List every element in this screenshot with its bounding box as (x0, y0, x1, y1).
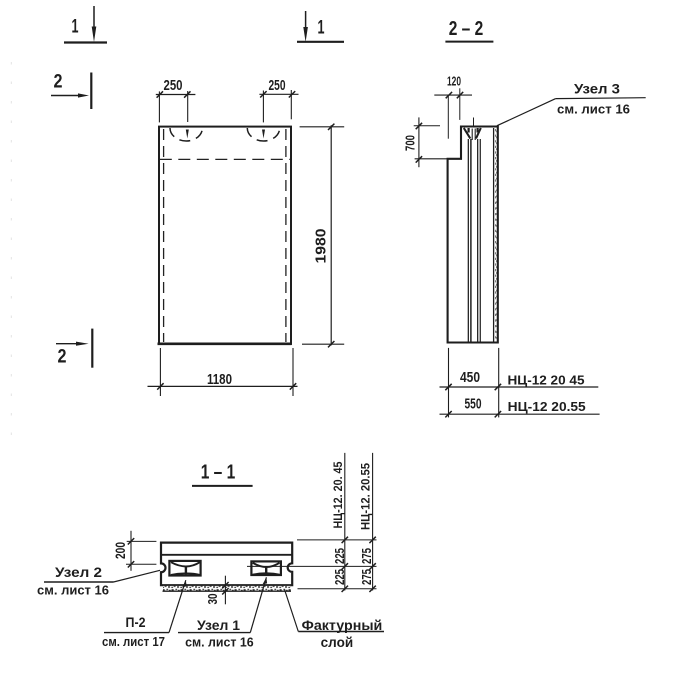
svg-text:250: 250 (269, 77, 286, 94)
svg-text:30: 30 (205, 594, 220, 605)
svg-text:120: 120 (447, 75, 461, 89)
svg-text:275: 275 (359, 548, 374, 564)
svg-text:Узел 2: Узел 2 (55, 564, 102, 580)
svg-text:НЦ-12 20 45: НЦ-12 20 45 (508, 373, 585, 388)
svg-text:2: 2 (54, 72, 63, 93)
svg-text:Фактурный: Фактурный (302, 617, 383, 633)
svg-text:см. лист 17: см. лист 17 (102, 634, 165, 649)
svg-text:700: 700 (402, 135, 417, 151)
svg-text:см. лист 16: см. лист 16 (185, 635, 254, 650)
svg-text:450: 450 (460, 369, 480, 386)
svg-text:275: 275 (359, 569, 374, 585)
svg-text:НЦ-12 20.55: НЦ-12 20.55 (508, 399, 586, 414)
svg-text:1: 1 (318, 18, 325, 39)
svg-text:1980: 1980 (312, 229, 329, 264)
svg-text:слой: слой (321, 634, 354, 650)
svg-text:1: 1 (72, 17, 79, 38)
svg-text:1180: 1180 (207, 371, 232, 388)
svg-text:1 – 1: 1 – 1 (201, 462, 236, 484)
svg-text:П-2: П-2 (126, 614, 146, 630)
svg-text:200: 200 (113, 542, 128, 559)
svg-text:НЦ-12. 20.55: НЦ-12. 20.55 (359, 463, 373, 530)
svg-text:2: 2 (58, 347, 67, 368)
svg-text:НЦ-12. 20. 45: НЦ-12. 20. 45 (331, 461, 345, 528)
svg-text:225: 225 (332, 569, 347, 585)
svg-text:2 – 2: 2 – 2 (449, 18, 484, 40)
svg-text:250: 250 (164, 77, 183, 94)
svg-text:225: 225 (332, 548, 347, 564)
svg-text:см. лист 16: см. лист 16 (557, 102, 630, 117)
svg-text:Узел 1: Узел 1 (197, 617, 240, 633)
svg-text:см. лист 16: см. лист 16 (37, 582, 109, 597)
svg-text:Узел 3: Узел 3 (574, 81, 620, 97)
svg-text:550: 550 (465, 396, 482, 413)
